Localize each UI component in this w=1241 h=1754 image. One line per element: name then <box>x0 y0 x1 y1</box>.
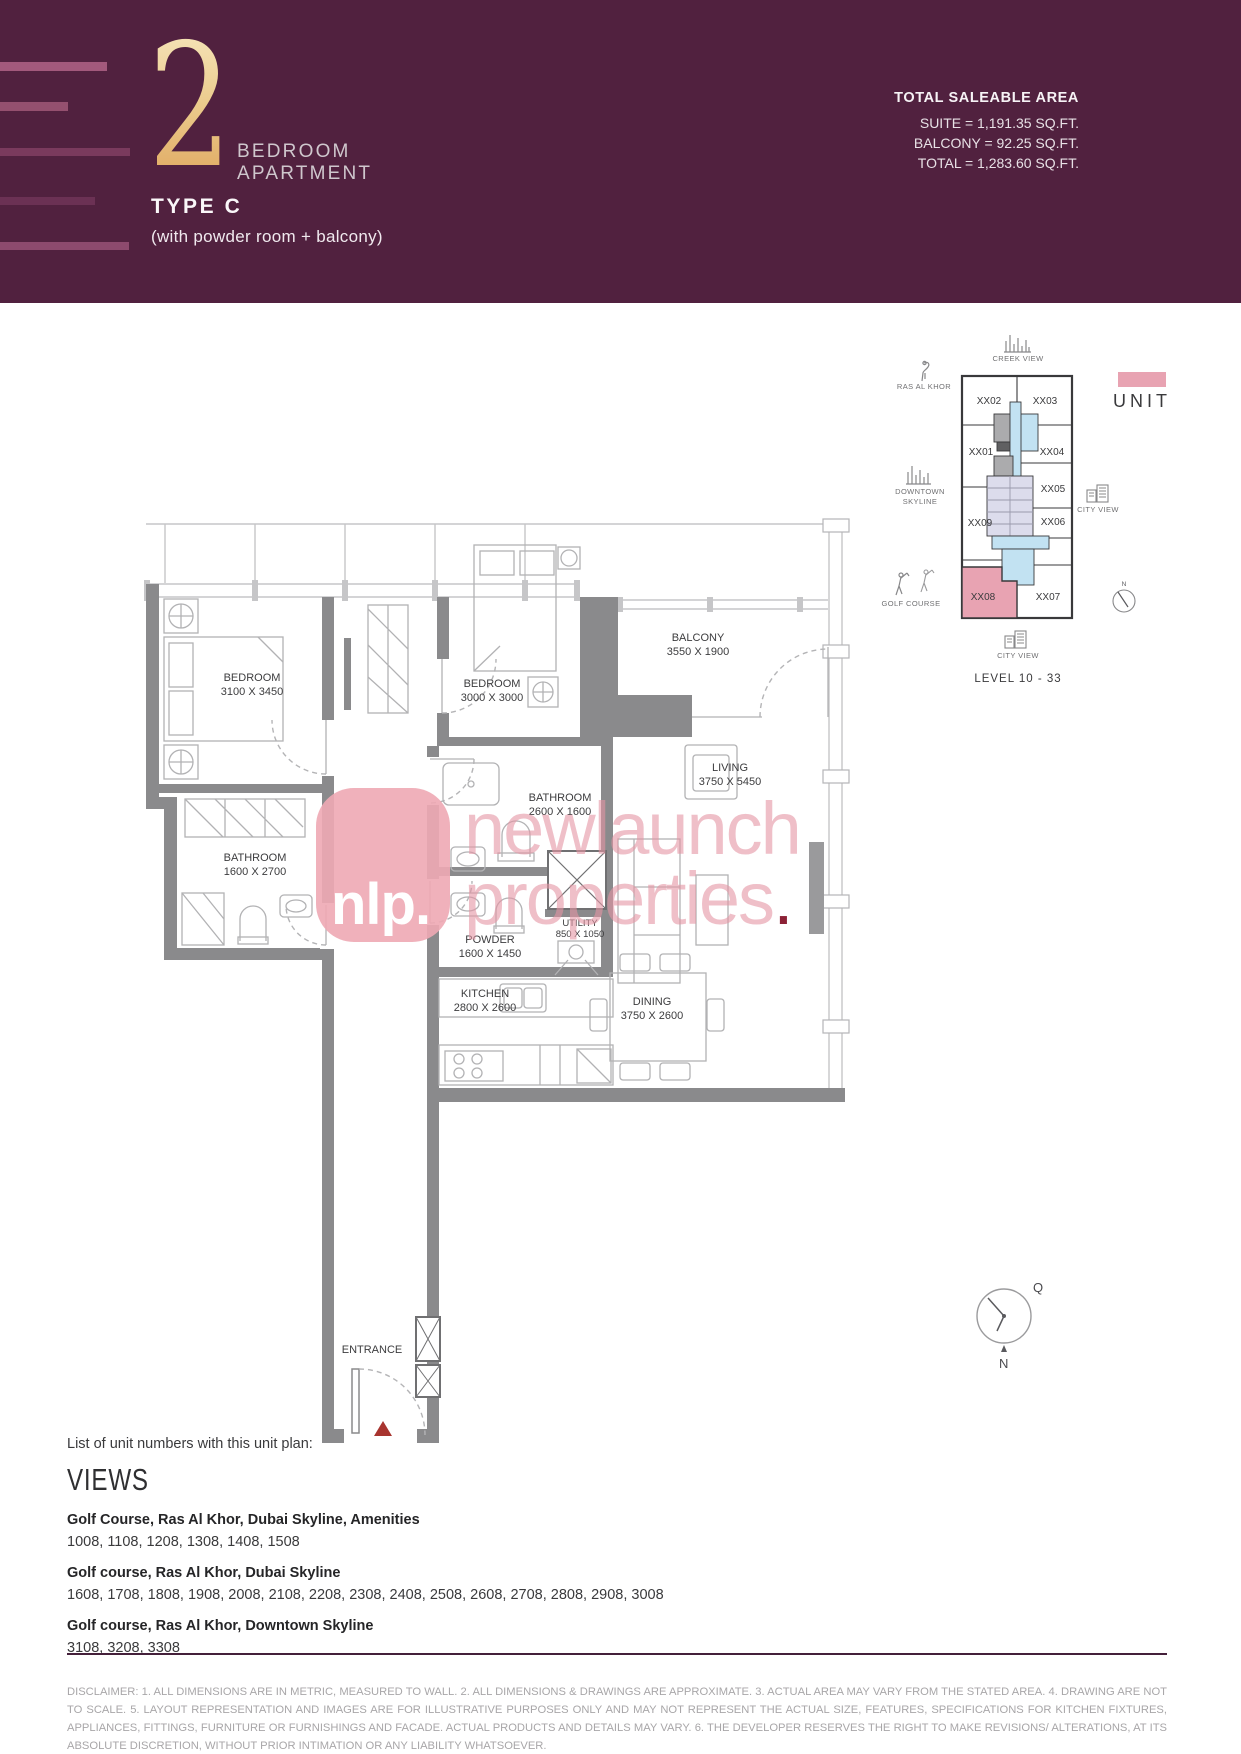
area-suite: SUITE = 1,191.35 SQ.FT. <box>894 113 1079 133</box>
golf-course-plan-marker <box>888 568 968 613</box>
room-label: BATHROOM <box>529 792 592 804</box>
views-heading: VIEWS <box>67 1462 925 1498</box>
mini-compass-icon: N <box>1113 581 1135 612</box>
view-group-title: Golf Course, Ras Al Khor, Dubai Skyline,… <box>67 1512 1167 1528</box>
room-dims: 3750 X 2600 <box>621 1010 683 1022</box>
downtown-label-2: SKYLINE <box>903 497 937 506</box>
tv-console <box>809 842 824 934</box>
footer-divider <box>67 1653 1167 1655</box>
golf-course-icon <box>921 570 934 592</box>
unit-cell-label: XX03 <box>1033 396 1058 407</box>
creek-view-label: CREEK VIEW <box>992 354 1044 363</box>
ras-al-khor-icon <box>922 361 929 381</box>
city-view-right-icon <box>1087 485 1108 502</box>
room-label: LIVING <box>712 762 748 774</box>
city-view-bottom-icon <box>1005 631 1026 648</box>
area-balcony: BALCONY = 92.25 SQ.FT. <box>894 133 1079 153</box>
room-label: KITCHEN <box>461 988 509 1000</box>
room-dims: 2600 X 1600 <box>529 806 591 818</box>
title-line2: APARTMENT <box>237 163 372 185</box>
room-dims: 1600 X 1450 <box>459 948 521 960</box>
unit-cell-label: XX07 <box>1036 592 1061 603</box>
area-heading: TOTAL SALEABLE AREA <box>894 90 1079 106</box>
deco-line <box>0 102 68 111</box>
saleable-area-block: TOTAL SALEABLE AREA SUITE = 1,191.35 SQ.… <box>894 90 1079 173</box>
unit-cell-label: XX05 <box>1041 484 1066 495</box>
room-dims: 1600 X 2700 <box>224 866 286 878</box>
view-group: Golf course, Ras Al Khor, Downtown Skyli… <box>67 1618 1167 1656</box>
disclaimer-text: DISCLAIMER: 1. ALL DIMENSIONS ARE IN MET… <box>67 1684 1167 1754</box>
apartment-title: BEDROOM APARTMENT <box>237 141 372 185</box>
room-label: POWDER <box>465 934 515 946</box>
city-view-bottom-label: CITY VIEW <box>997 651 1039 660</box>
building-plan: XX02 XX03 XX01 XX04 XX05 XX06 XX09 XX08 … <box>962 376 1072 618</box>
deco-line <box>0 148 130 156</box>
bathroom-fixtures <box>443 763 534 871</box>
deco-line <box>0 197 95 205</box>
deco-line <box>0 62 107 71</box>
shaft <box>548 851 606 909</box>
unit-cell-label: XX02 <box>977 396 1002 407</box>
entrance-marker <box>374 1421 392 1436</box>
compass-n-label: N <box>999 1356 1008 1371</box>
room-label: BALCONY <box>672 632 725 644</box>
room-label: UTILITY <box>562 918 598 929</box>
room-dims: 850 X 1050 <box>556 929 605 940</box>
unit-legend-label: UNIT <box>1113 391 1171 411</box>
room-label: ENTRANCE <box>342 1344 403 1356</box>
view-group: Golf Course, Ras Al Khor, Dubai Skyline,… <box>67 1512 1167 1550</box>
area-total: TOTAL = 1,283.60 SQ.FT. <box>894 153 1079 173</box>
compass-icon: Q N <box>960 1274 1052 1374</box>
wardrobe-hatch <box>185 605 408 837</box>
type-label: TYPE C <box>151 195 242 219</box>
view-group-title: Golf course, Ras Al Khor, Downtown Skyli… <box>67 1618 1167 1634</box>
room-label: BATHROOM <box>224 852 287 864</box>
downtown-skyline-icon <box>906 466 931 484</box>
powder-fixtures <box>451 893 524 933</box>
floorplan-sheet: 2 BEDROOM APARTMENT TYPE C (with powder … <box>0 0 1241 1754</box>
unit-cell-label: XX09 <box>968 518 993 529</box>
entrance-door <box>352 1369 425 1436</box>
title-line1: BEDROOM <box>237 141 372 163</box>
corridor-shafts <box>416 1317 440 1397</box>
unit-cell-label: XX06 <box>1041 517 1066 528</box>
door-openings <box>320 720 441 949</box>
unit-cell-label: XX08 <box>971 592 996 603</box>
header-band: 2 BEDROOM APARTMENT TYPE C (with powder … <box>0 0 1241 303</box>
downtown-label-1: DOWNTOWN <box>895 487 945 496</box>
view-group-units: 1608, 1708, 1808, 1908, 2008, 2108, 2208… <box>67 1587 1167 1603</box>
utility-appliance <box>558 941 594 963</box>
unit-cell-label: XX04 <box>1040 447 1065 458</box>
compass-q-label: Q <box>1033 1280 1043 1295</box>
creek-view-icon <box>1004 335 1031 352</box>
room-dims: 3000 X 3000 <box>461 692 523 704</box>
room-dims: 3100 X 3450 <box>221 686 283 698</box>
bedroom-count: 2 <box>148 22 232 192</box>
bathroom-fixtures <box>182 893 312 945</box>
city-view-right-label: CITY VIEW <box>1077 505 1119 514</box>
mini-compass-n: N <box>1122 581 1127 588</box>
deco-line <box>0 242 129 250</box>
view-group-units: 1008, 1108, 1208, 1308, 1408, 1508 <box>67 1534 1167 1550</box>
room-dims: 3750 X 5450 <box>699 776 761 788</box>
view-group-title: Golf course, Ras Al Khor, Dubai Skyline <box>67 1565 1167 1581</box>
footer: List of unit numbers with this unit plan… <box>67 1436 1167 1671</box>
bed <box>474 545 556 671</box>
level-label: LEVEL 10 - 33 <box>974 673 1061 685</box>
unit-legend-swatch <box>1118 372 1166 387</box>
room-label: DINING <box>633 996 672 1008</box>
floorplan-drawing: BEDROOM 3100 X 3450 BEDROOM 3000 X 3000 … <box>140 505 855 1450</box>
subtitle: (with powder room + balcony) <box>151 227 383 247</box>
room-dims: 2800 X 2600 <box>454 1002 516 1014</box>
room-label: BEDROOM <box>224 672 281 684</box>
room-dims: 3550 X 1900 <box>667 646 729 658</box>
room-label: BEDROOM <box>464 678 521 690</box>
side-table-lamp <box>164 599 198 779</box>
unit-cell-label: XX01 <box>969 447 994 458</box>
ras-al-khor-label: RAS AL KHOR <box>897 382 951 391</box>
view-group: Golf course, Ras Al Khor, Dubai Skyline … <box>67 1565 1167 1603</box>
